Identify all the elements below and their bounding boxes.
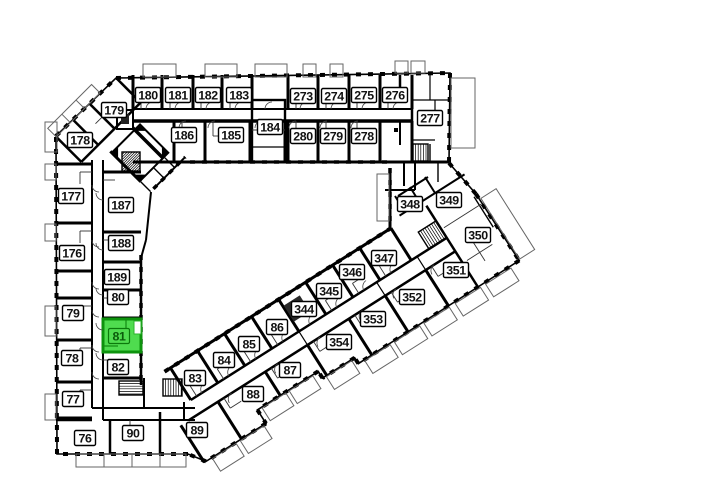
svg-text:348: 348 [400, 197, 420, 211]
svg-text:187: 187 [111, 198, 131, 212]
svg-text:349: 349 [439, 193, 459, 207]
svg-text:185: 185 [221, 128, 241, 142]
svg-text:184: 184 [260, 120, 280, 134]
svg-text:89: 89 [190, 423, 204, 437]
svg-text:345: 345 [319, 284, 339, 298]
svg-text:186: 186 [174, 128, 194, 142]
svg-text:274: 274 [324, 89, 344, 103]
svg-text:188: 188 [111, 236, 131, 250]
svg-text:179: 179 [104, 103, 124, 117]
svg-text:82: 82 [111, 360, 125, 374]
svg-text:78: 78 [65, 351, 79, 365]
svg-text:353: 353 [363, 312, 383, 326]
svg-text:90: 90 [126, 426, 140, 440]
svg-text:354: 354 [329, 335, 349, 349]
svg-text:86: 86 [270, 320, 284, 334]
svg-text:278: 278 [354, 129, 374, 143]
svg-text:276: 276 [385, 88, 405, 102]
svg-text:346: 346 [342, 265, 362, 279]
svg-text:182: 182 [198, 88, 218, 102]
svg-text:77: 77 [66, 392, 80, 406]
svg-text:88: 88 [246, 387, 260, 401]
svg-text:352: 352 [402, 290, 422, 304]
svg-text:347: 347 [374, 251, 394, 265]
svg-text:87: 87 [283, 363, 297, 377]
svg-text:189: 189 [107, 270, 127, 284]
svg-text:344: 344 [294, 302, 314, 316]
svg-text:279: 279 [323, 129, 343, 143]
svg-text:277: 277 [420, 111, 440, 125]
svg-text:83: 83 [188, 371, 202, 385]
svg-text:180: 180 [138, 88, 158, 102]
svg-text:79: 79 [66, 306, 80, 320]
svg-text:80: 80 [111, 290, 125, 304]
svg-text:351: 351 [446, 263, 466, 277]
svg-text:177: 177 [61, 189, 81, 203]
svg-text:176: 176 [62, 246, 82, 260]
svg-text:275: 275 [354, 88, 374, 102]
svg-text:183: 183 [229, 88, 249, 102]
svg-text:350: 350 [468, 228, 488, 242]
svg-text:280: 280 [293, 129, 313, 143]
svg-text:84: 84 [217, 353, 231, 367]
svg-text:76: 76 [78, 431, 92, 445]
svg-text:178: 178 [70, 133, 90, 147]
svg-text:85: 85 [242, 337, 256, 351]
svg-text:273: 273 [293, 89, 313, 103]
svg-text:81: 81 [112, 329, 126, 343]
svg-text:181: 181 [168, 88, 188, 102]
